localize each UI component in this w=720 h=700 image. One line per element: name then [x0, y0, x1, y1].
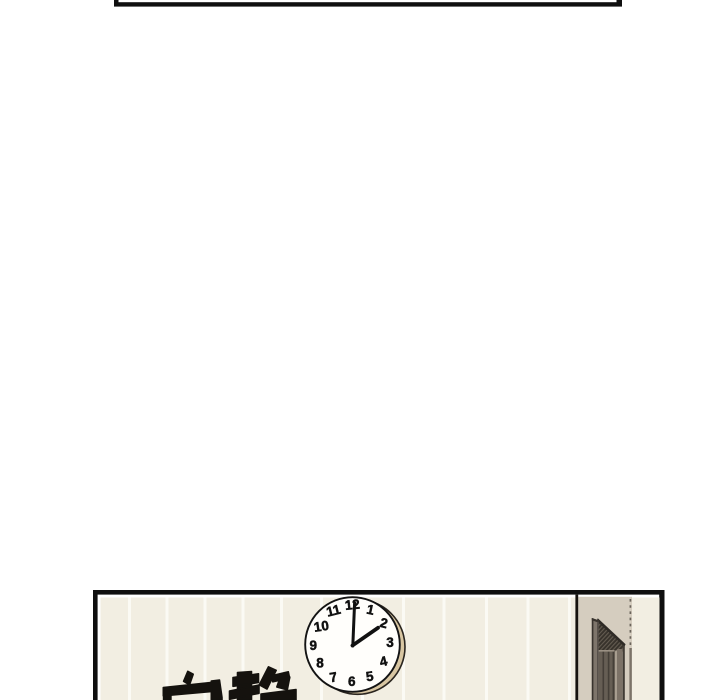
svg-text:10: 10 [313, 618, 330, 635]
svg-text:6: 6 [348, 674, 356, 689]
svg-text:12: 12 [344, 596, 361, 612]
svg-text:8: 8 [316, 656, 324, 671]
svg-text:3: 3 [386, 635, 394, 650]
svg-text:9: 9 [310, 638, 318, 653]
